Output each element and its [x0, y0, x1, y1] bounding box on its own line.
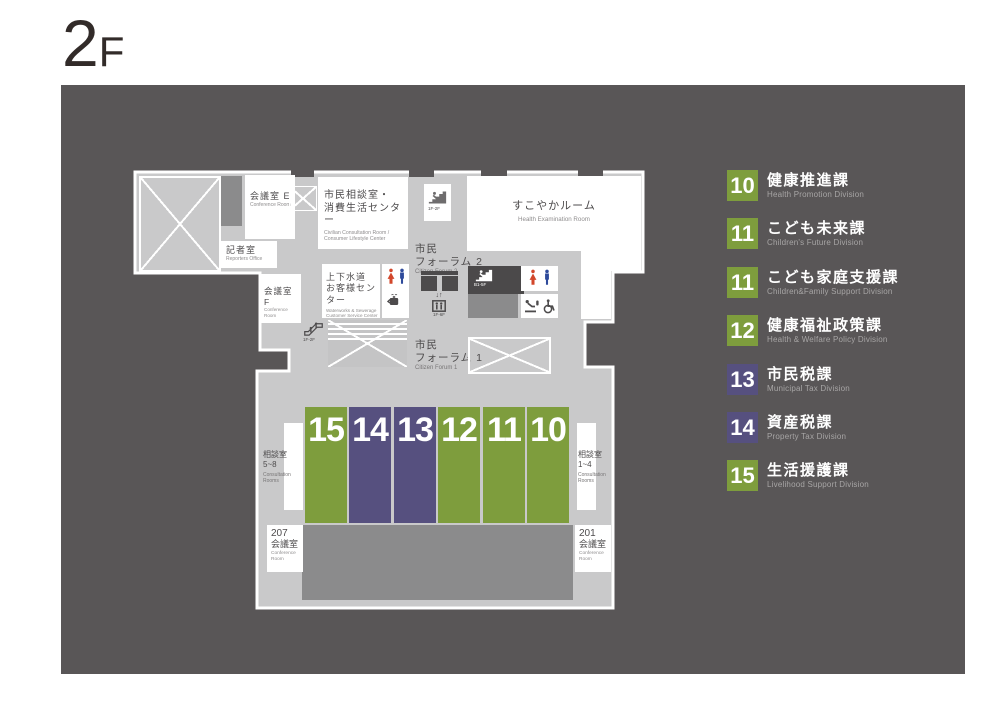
- elevator-arrows-icon: ↓↑: [427, 293, 451, 299]
- escalator: 1F-2F: [303, 321, 327, 343]
- legend-item-13: 13 市民税課 Municipal Tax Division: [727, 364, 850, 395]
- room-name-en: Health Examination Room: [467, 216, 641, 223]
- legend-number-badge: 15: [727, 460, 758, 491]
- legend-number-badge: 12: [727, 315, 758, 346]
- doorway: [421, 276, 437, 291]
- legend-item-11b: 11 こども家庭支援課 Children&Family Support Divi…: [727, 267, 899, 298]
- legend-number-badge: 14: [727, 412, 758, 443]
- room-sukoyaka-ext2: [581, 271, 611, 319]
- room-conference-f: 会議室 F Conference Room: [261, 274, 301, 323]
- stairs-box-b1: B1-5F: [468, 266, 524, 294]
- legend-en: Children&Family Support Division: [767, 287, 899, 296]
- label-line2: 1~4: [578, 460, 620, 470]
- elevator-range-label: 1F-6F: [427, 313, 451, 318]
- legend-ja: こども家庭支援課: [767, 268, 899, 287]
- block-number: 10: [530, 413, 566, 447]
- room-sukoyaka-ext: [581, 251, 641, 271]
- label-line2: 5~8: [263, 460, 305, 470]
- toilet-box-right: [521, 266, 558, 291]
- elevator: ↓↑ 1F-6F: [427, 293, 451, 318]
- room-waterworks: 上下水道 お客様センター Waterworks & Sewerage Custo…: [322, 264, 380, 318]
- room-number: 207: [271, 528, 303, 539]
- legend-en: Children's Future Division: [767, 238, 866, 247]
- legend-ja: 生活援護課: [767, 461, 869, 480]
- room-name-line1: 市民相談室・: [324, 190, 408, 203]
- legend-item-12: 12 健康福祉政策課 Health & Welfare Policy Divis…: [727, 315, 888, 346]
- block-number: 14: [352, 413, 388, 447]
- doorway-lintel: [421, 271, 458, 275]
- legend-item-14: 14 資産税課 Property Tax Division: [727, 412, 846, 443]
- office-area: [302, 525, 573, 600]
- legend-item-11a: 11 こども未来課 Children's Future Division: [727, 218, 866, 249]
- wheelchair-icon: [542, 299, 556, 314]
- legend-en: Livelihood Support Division: [767, 480, 869, 489]
- map-block-12: 12: [438, 407, 480, 523]
- escalator-steps: [328, 320, 407, 342]
- legend-number-badge: 13: [727, 364, 758, 395]
- doorway: [442, 276, 458, 291]
- room-number: 201: [579, 528, 611, 539]
- legend-ja: 市民税課: [767, 365, 850, 384]
- label-line1: 相談室: [578, 450, 620, 460]
- legend-ja: 健康福祉政策課: [767, 316, 888, 335]
- legend-item-10: 10 健康推進課 Health Promotion Division: [727, 170, 864, 201]
- consult-1-4-label: 相談室 1~4 Consultation Rooms: [578, 450, 620, 484]
- legend-number-badge: 11: [727, 218, 758, 249]
- block-number: 15: [308, 413, 344, 447]
- shaft-void: [289, 186, 317, 211]
- stairs-range-label: B1-5F: [474, 283, 524, 288]
- consult-5-8-label: 相談室 5~8 Consultation Rooms: [263, 450, 305, 484]
- room-207: 207 会議室 Conference Room: [267, 525, 303, 572]
- woman-icon: [387, 268, 395, 285]
- room-name-line1: 上下水道: [326, 272, 380, 283]
- legend-en: Property Tax Division: [767, 432, 846, 441]
- legend-item-15: 15 生活援護課 Livelihood Support Division: [727, 460, 869, 491]
- toilet-icons: [387, 268, 409, 285]
- legend-en: Health & Welfare Policy Division: [767, 335, 888, 344]
- map-block-14: 14: [349, 407, 391, 523]
- elevator-icon: [432, 300, 446, 312]
- room-name-line2: 消費生活センター: [324, 203, 408, 228]
- room-name: すこやかルーム: [467, 200, 641, 214]
- room-name-en: Reporters Office: [226, 256, 277, 262]
- hot-water-icon: [387, 293, 401, 307]
- room-sukoyaka-label: すこやかルーム Health Examination Room: [467, 200, 641, 223]
- escalator-icon: [303, 321, 324, 337]
- legend-number-badge: 11: [727, 267, 758, 298]
- map-block-11: 11: [483, 407, 525, 523]
- facade-notch: [409, 168, 434, 177]
- room-name-line2: お客様センター: [326, 283, 380, 306]
- legend-en: Municipal Tax Division: [767, 384, 850, 393]
- room-name: 会議室: [271, 539, 303, 550]
- map-block-15: 15: [305, 407, 347, 523]
- block-number: 12: [441, 413, 477, 447]
- map-block-13: 13: [394, 407, 436, 523]
- room-reporters: 記者室 Reporters Office: [221, 241, 277, 268]
- service-block: [468, 294, 518, 318]
- stairs-box-top: 1F-2F: [424, 184, 451, 221]
- room-name: 会議室 F: [264, 286, 301, 307]
- map-block-10: 10: [527, 407, 569, 523]
- wall-block: [221, 176, 242, 226]
- block-number: 11: [487, 413, 521, 447]
- escalator-range-label: 1F-2F: [303, 338, 327, 343]
- label-line1: 相談室: [263, 450, 305, 460]
- room-name-en2: Room: [579, 557, 611, 563]
- man-icon: [398, 268, 406, 285]
- stairs-icon: [428, 190, 447, 205]
- woman-icon: [529, 269, 537, 286]
- room-name-en: Conference Room: [264, 307, 301, 318]
- label-line1: 市民: [415, 243, 483, 256]
- forum1-void: [468, 337, 551, 374]
- room-name-en2: Room: [271, 557, 303, 563]
- room-201: 201 会議室 Conference Room: [575, 525, 611, 572]
- label-en2: Rooms: [578, 478, 620, 484]
- legend-ja: こども未来課: [767, 219, 866, 238]
- escalator-shaft: [328, 320, 407, 367]
- label-en2: Rooms: [263, 478, 305, 484]
- block-number: 13: [397, 413, 433, 447]
- legend-ja: 健康推進課: [767, 171, 864, 190]
- toilet-box-middle: [382, 264, 409, 318]
- baby-changing-icon: [524, 299, 540, 314]
- legend-number-badge: 10: [727, 170, 758, 201]
- room-name: 会議室: [579, 539, 611, 550]
- legend-en: Health Promotion Division: [767, 190, 864, 199]
- room-name-en2: Consumer Lifestyle Center: [324, 236, 408, 242]
- stairs-range-label: 1F-2F: [428, 207, 451, 212]
- room-conference-e: 会議室 E Conference Room: [245, 175, 295, 239]
- room-name-en2: Customer Service Center: [326, 313, 380, 318]
- room-consultation-center: 市民相談室・ 消費生活センター Civilian Consultation Ro…: [318, 177, 408, 249]
- man-icon: [543, 269, 551, 286]
- legend-ja: 資産税課: [767, 413, 846, 432]
- room-name: 記者室: [226, 245, 277, 256]
- stairs-icon: [474, 269, 494, 282]
- accessible-toilet-box: [521, 294, 558, 318]
- atrium-void: [139, 176, 221, 272]
